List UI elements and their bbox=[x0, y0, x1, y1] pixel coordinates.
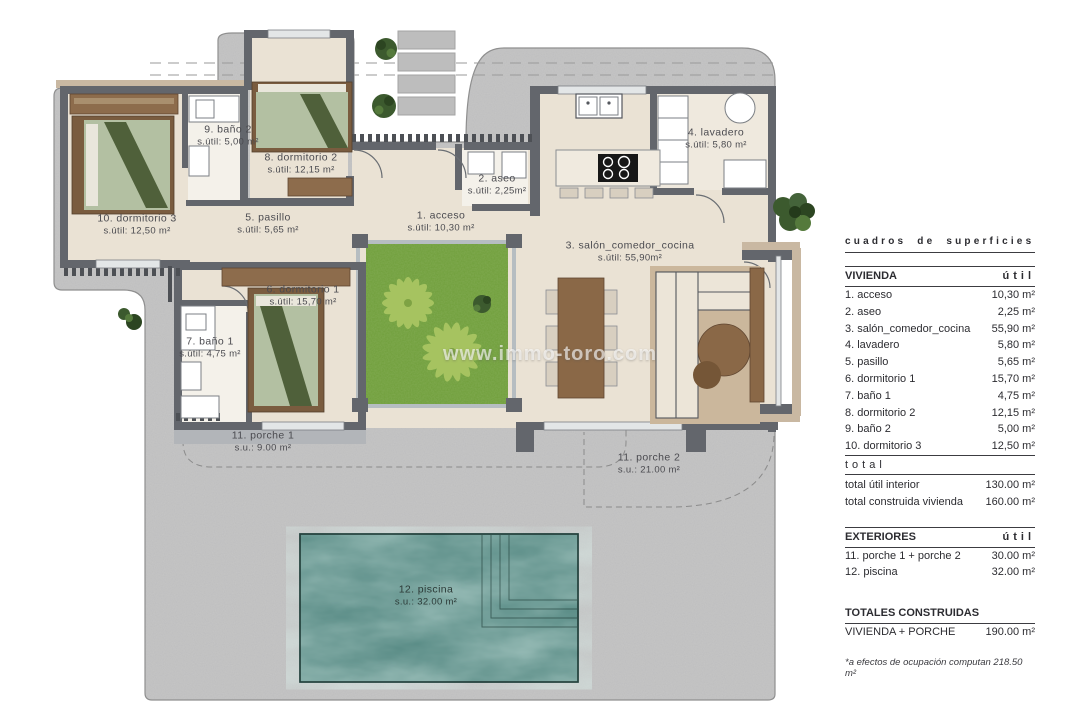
entrance-bush-icon bbox=[372, 38, 397, 118]
courtyard-bush-icon bbox=[473, 295, 491, 313]
exteriores-header-row: EXTERIORES útil bbox=[845, 527, 1035, 548]
vivienda-rows: 1. acceso10,30 m² 2. aseo2,25 m² 3. saló… bbox=[845, 287, 1035, 455]
total-word: total bbox=[845, 455, 1035, 475]
table-title: cuadros de superficies bbox=[845, 236, 1035, 253]
wardrobe bbox=[288, 178, 352, 196]
util-header: útil bbox=[1003, 531, 1036, 543]
surfaces-table: cuadros de superficies VIVIENDA útil 1. … bbox=[845, 236, 1035, 679]
table-row: total útil interior130.00 m² bbox=[845, 477, 1035, 494]
sideboard bbox=[750, 268, 764, 402]
table-row: 1. acceso10,30 m² bbox=[845, 287, 1035, 304]
table-row: 2. aseo2,25 m² bbox=[845, 304, 1035, 321]
cooktop-icon bbox=[598, 154, 638, 182]
porch-slab bbox=[174, 430, 366, 444]
entrance-pavers bbox=[398, 31, 455, 115]
table-row: total construida vivienda160.00 m² bbox=[845, 494, 1035, 511]
wardrobe bbox=[222, 268, 350, 286]
table-footnote: *a efectos de ocupación computan 218.50 … bbox=[845, 657, 1035, 679]
table-row: 7. baño 14,75 m² bbox=[845, 388, 1035, 405]
util-header: útil bbox=[1003, 270, 1036, 282]
table-row: 6. dormitorio 115,70 m² bbox=[845, 371, 1035, 388]
table-row: 5. pasillo5,65 m² bbox=[845, 354, 1035, 371]
bed bbox=[252, 82, 352, 152]
table-row: 11. porche 1 + porche 230.00 m² bbox=[845, 548, 1035, 565]
courtyard-garden bbox=[356, 240, 516, 408]
bush-icon bbox=[118, 308, 142, 330]
table-row: 10. dormitorio 312,50 m² bbox=[845, 438, 1035, 455]
totales-construidas-rows: VIVIENDA + PORCHE190.00 m² bbox=[845, 624, 1035, 641]
table-row: 8. dormitorio 212,15 m² bbox=[845, 405, 1035, 422]
side-table bbox=[693, 361, 721, 389]
floorplan-page: 1. acceso s.útil: 10,30 m² 2. aseo s.úti… bbox=[0, 0, 1080, 720]
totals-rows: total útil interior130.00 m² total const… bbox=[845, 475, 1035, 511]
table-row: 12. piscina32.00 m² bbox=[845, 564, 1035, 581]
dining-table bbox=[546, 278, 617, 398]
vivienda-header: VIVIENDA bbox=[845, 270, 897, 282]
table-row: 3. salón_comedor_cocina55,90 m² bbox=[845, 321, 1035, 338]
table-row: 9. baño 25,00 m² bbox=[845, 421, 1035, 438]
vivienda-header-row: VIVIENDA útil bbox=[845, 266, 1035, 287]
bed bbox=[72, 116, 174, 214]
table-row: 4. lavadero5,80 m² bbox=[845, 337, 1035, 354]
living-area bbox=[650, 266, 764, 424]
totales-construidas-header: TOTALES CONSTRUIDAS bbox=[845, 607, 1035, 624]
exteriores-rows: 11. porche 1 + porche 230.00 m² 12. pisc… bbox=[845, 548, 1035, 582]
pool bbox=[300, 534, 578, 682]
table-row: VIVIENDA + PORCHE190.00 m² bbox=[845, 624, 1035, 641]
bed bbox=[248, 288, 324, 412]
exteriores-header: EXTERIORES bbox=[845, 531, 916, 543]
tree-icon bbox=[773, 193, 815, 231]
kitchen-sink bbox=[576, 94, 622, 118]
